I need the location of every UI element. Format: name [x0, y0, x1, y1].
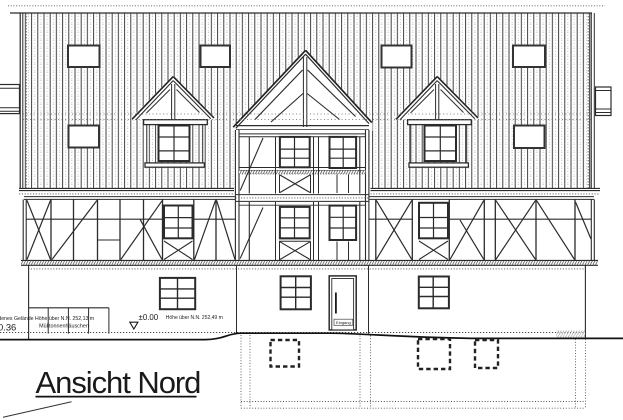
- svg-text:0.36: 0.36: [0, 322, 16, 333]
- svg-text:±0.00: ±0.00: [139, 313, 159, 322]
- svg-text:Mülltonnenhäuschen: Mülltonnenhäuschen: [39, 324, 89, 330]
- svg-text:Höhe über N.N. 252,49 m: Höhe über N.N. 252,49 m: [166, 315, 223, 321]
- svg-text:Eingang: Eingang: [336, 320, 351, 325]
- svg-text:Ansicht Nord: Ansicht Nord: [36, 365, 201, 400]
